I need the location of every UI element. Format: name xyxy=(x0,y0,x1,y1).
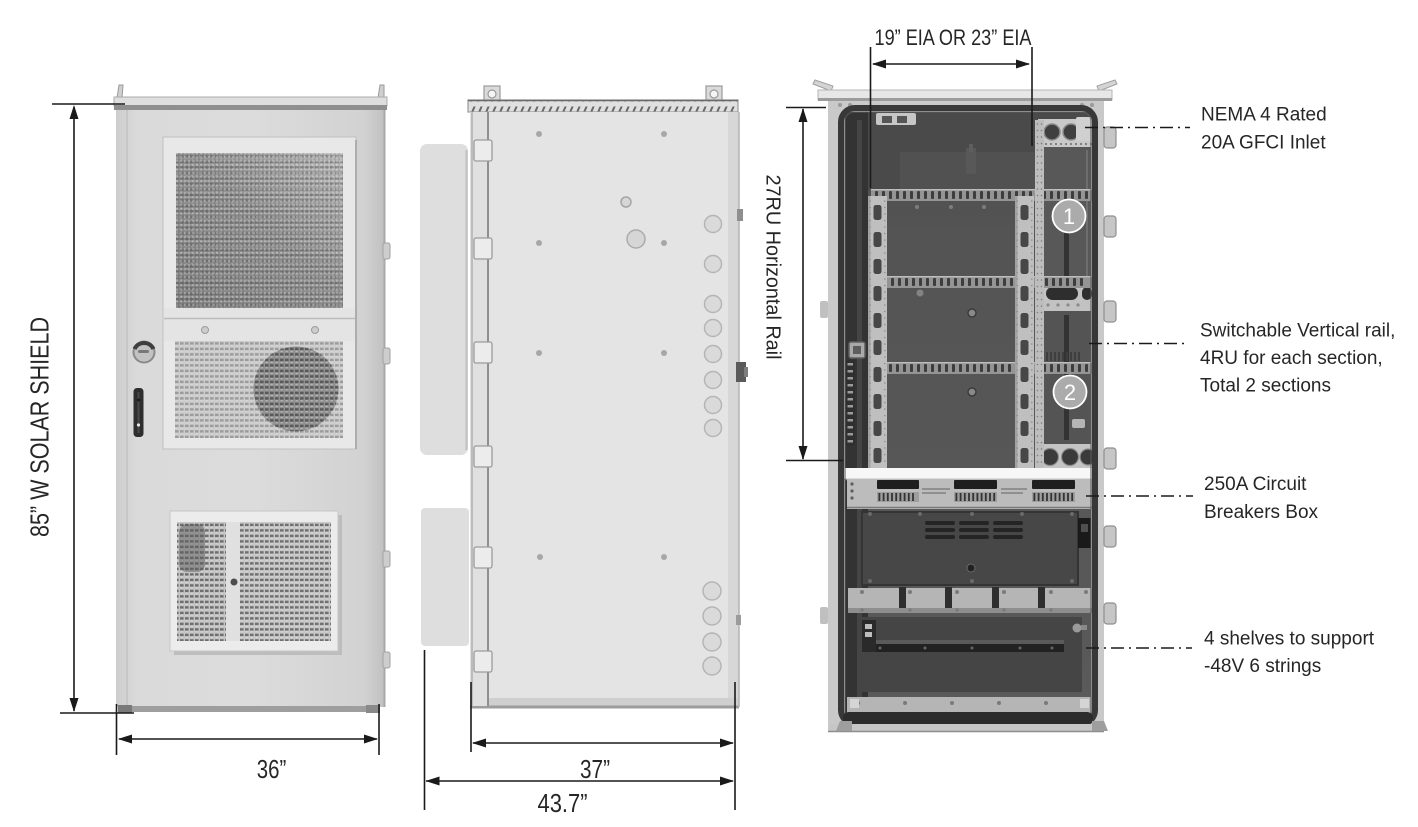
svg-text:27RU Horizontal Rail: 27RU Horizontal Rail xyxy=(762,175,784,360)
svg-text:1: 1 xyxy=(1063,204,1075,229)
svg-text:250A Circuit: 250A Circuit xyxy=(1204,474,1307,495)
svg-text:4 shelves to support: 4 shelves to support xyxy=(1204,629,1375,650)
svg-text:NEMA 4 Rated: NEMA 4 Rated xyxy=(1201,105,1327,126)
svg-text:-48V 6 strings: -48V 6 strings xyxy=(1204,656,1321,677)
svg-text:20A GFCI Inlet: 20A GFCI Inlet xyxy=(1201,133,1326,154)
svg-text:Switchable Vertical rail,: Switchable Vertical rail, xyxy=(1200,321,1395,342)
svg-text:Total 2 sections: Total 2 sections xyxy=(1200,376,1331,397)
svg-text:4RU for each section,: 4RU for each section, xyxy=(1200,348,1383,369)
svg-text:36”: 36” xyxy=(257,756,287,784)
svg-text:2: 2 xyxy=(1064,380,1076,405)
svg-text:19” EIA OR 23” EIA: 19” EIA OR 23” EIA xyxy=(875,25,1032,50)
svg-text:Breakers Box: Breakers Box xyxy=(1204,502,1319,523)
svg-text:37”: 37” xyxy=(580,756,610,784)
svg-text:85” W SOLAR SHIELD: 85” W SOLAR SHIELD xyxy=(25,317,55,537)
svg-text:43.7”: 43.7” xyxy=(538,790,588,818)
